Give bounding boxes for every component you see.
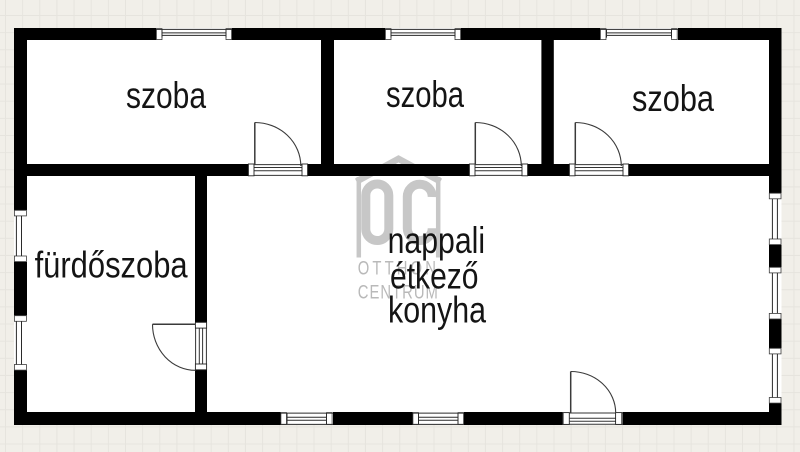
svg-text:fürdőszoba: fürdőszoba [35, 244, 188, 285]
svg-text:szoba: szoba [632, 78, 714, 119]
svg-text:szoba: szoba [126, 75, 206, 116]
svg-text:konyha: konyha [388, 289, 486, 330]
svg-text:szoba: szoba [386, 74, 464, 115]
